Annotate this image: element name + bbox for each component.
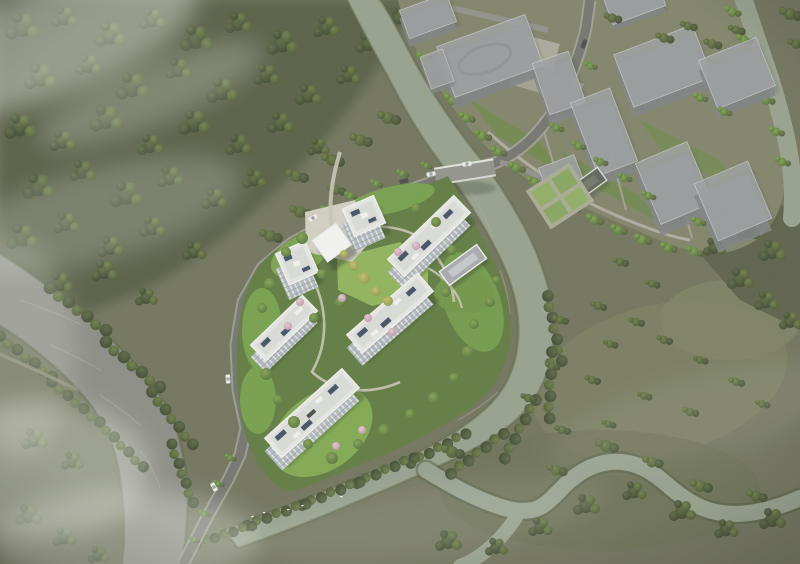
vignette [0,0,800,564]
aerial-rendering [0,0,800,564]
scene [0,0,800,564]
